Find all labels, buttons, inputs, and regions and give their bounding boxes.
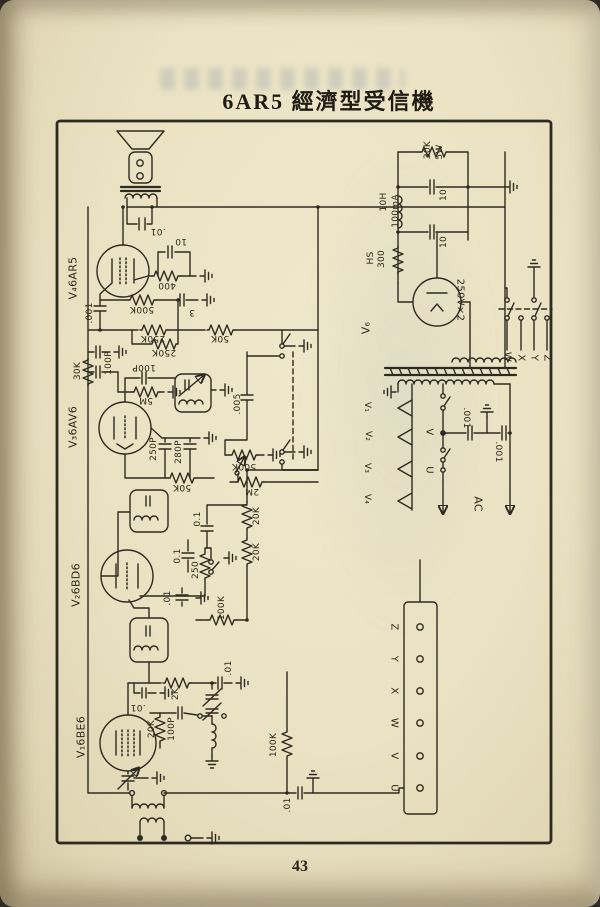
schematic-label: 10 — [175, 236, 187, 246]
schematic-label: 100P — [104, 351, 114, 375]
schematic-label: .001 — [85, 302, 95, 323]
schematic-label: 30K — [73, 362, 83, 380]
schematic-label: .005 — [233, 393, 243, 414]
schematic-label: 50K — [173, 482, 191, 492]
schematic-label: 300 — [377, 250, 387, 268]
schematic-label: .01 — [150, 226, 165, 236]
schematic-label: 20K — [252, 543, 262, 561]
schematic-label: .001 — [493, 441, 503, 462]
schematic-label: X — [389, 687, 400, 694]
tube-v2-if-stage — [101, 470, 318, 625]
schematic-label: HS — [366, 251, 376, 264]
schematic-label: .001 — [461, 407, 471, 428]
schematic-label: 30K — [423, 141, 433, 159]
tube-v4-output-stage — [88, 245, 318, 349]
schematic-label: 2K — [171, 688, 181, 700]
output-transformer — [121, 187, 160, 230]
schematic-label: .01 — [283, 797, 293, 812]
schematic-label: 100mA — [391, 194, 401, 228]
schematic-label: U — [424, 466, 435, 474]
schematic-label: 10 — [439, 236, 449, 248]
schematic-label: V₁6BE6 — [75, 716, 88, 758]
schematic-label: 100K — [269, 733, 279, 757]
schematic-label: V — [424, 428, 435, 435]
schematic-label: 250V×2 — [455, 279, 466, 321]
schematic-label: V₃6AV6 — [67, 406, 80, 448]
schematic-label: 5M — [139, 395, 153, 405]
schematic-label: V₆ — [360, 322, 373, 335]
schematic-label: 50K — [211, 333, 229, 343]
schematic-label: 3 — [189, 307, 195, 317]
schematic-label: 250 — [191, 561, 201, 579]
scanned-page-photo: { "page": { "title": "6AR5 經濟型受信機", "pag… — [0, 0, 600, 907]
schematic-label: V — [389, 752, 400, 759]
schematic-label: 20K — [252, 507, 262, 525]
schematic-label: 10H — [379, 192, 389, 211]
schematic-label: V₂ — [363, 431, 373, 441]
magazine-page: 6AR5 經濟型受信機 — [0, 0, 600, 907]
band-switch — [499, 260, 552, 350]
schematic-label: Z — [542, 354, 553, 361]
schematic-label: 500K — [232, 461, 256, 471]
schematic-label: W — [502, 352, 513, 362]
schematic-label: V₂6BD6 — [70, 563, 83, 607]
schematic-label: U — [389, 784, 400, 792]
power-transformer — [384, 358, 516, 510]
schematic-label: 5W — [435, 144, 445, 159]
schematic-label: 100P — [132, 362, 156, 372]
schematic-label: 20K — [147, 720, 157, 738]
schematic-label: V₄6AR5 — [67, 257, 80, 300]
schematic-label: Y — [389, 656, 400, 662]
schematic-label: AC — [472, 496, 485, 512]
schematic-label: 280P — [174, 440, 184, 464]
schematic-label: 100K — [217, 596, 227, 620]
schematic-label: 250K — [152, 347, 176, 357]
schematic-label: 2M — [245, 486, 259, 496]
schematic-label: Y — [529, 355, 540, 361]
schematic-label: V₄ — [362, 494, 372, 504]
terminal-strip — [404, 560, 437, 814]
schematic-label: 250K — [141, 333, 165, 343]
schematic-label: 0.1 — [173, 548, 183, 563]
schematic-label: W — [389, 718, 400, 728]
schematic-label: .01 — [163, 590, 173, 605]
schematic-label: V₁ — [362, 402, 372, 412]
schematic-label: Z — [389, 623, 400, 630]
schematic-label: 0.1 — [193, 511, 203, 526]
avc-line — [164, 672, 404, 799]
page-number: 43 — [0, 858, 600, 876]
speaker — [117, 131, 164, 183]
schematic-label: 500K — [130, 304, 154, 314]
schematic-label: 10 — [439, 189, 449, 201]
schematic-label: V₃ — [362, 463, 372, 473]
schematic-drawing — [0, 0, 600, 907]
schematic-label: 250P — [149, 437, 159, 461]
tube-v3-detector-stage — [83, 330, 318, 483]
antenna-coil — [130, 791, 219, 844]
schematic-label: 100P — [167, 717, 177, 741]
schematic-label: .01 — [224, 660, 234, 675]
schematic-label: X — [516, 354, 527, 361]
schematic-label: .01 — [130, 702, 145, 712]
schematic-label: 400 — [158, 280, 176, 290]
